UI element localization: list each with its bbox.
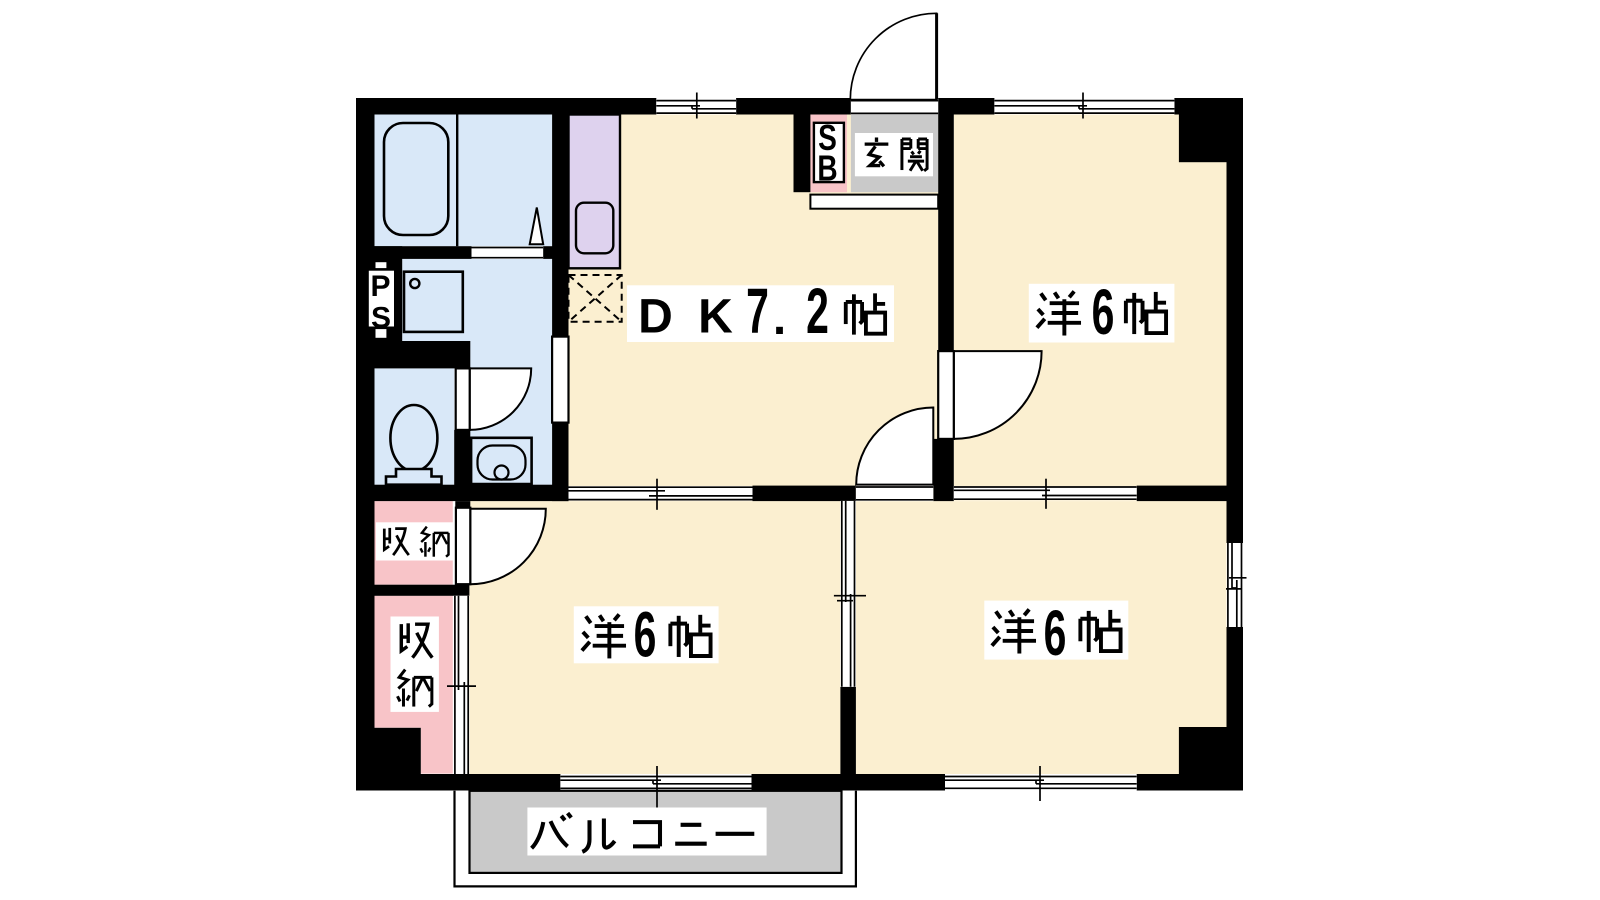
- svg-text:B: B: [817, 148, 837, 188]
- svg-text:P: P: [370, 270, 390, 303]
- svg-text:.: .: [773, 292, 786, 345]
- svg-text:S: S: [371, 302, 391, 335]
- svg-text:6: 6: [634, 599, 657, 670]
- svg-text:6: 6: [1044, 598, 1067, 669]
- svg-text:K: K: [698, 291, 733, 344]
- svg-text:6: 6: [1092, 277, 1115, 348]
- svg-text:7: 7: [746, 276, 769, 347]
- svg-text:2: 2: [806, 276, 829, 347]
- svg-text:D: D: [638, 291, 673, 344]
